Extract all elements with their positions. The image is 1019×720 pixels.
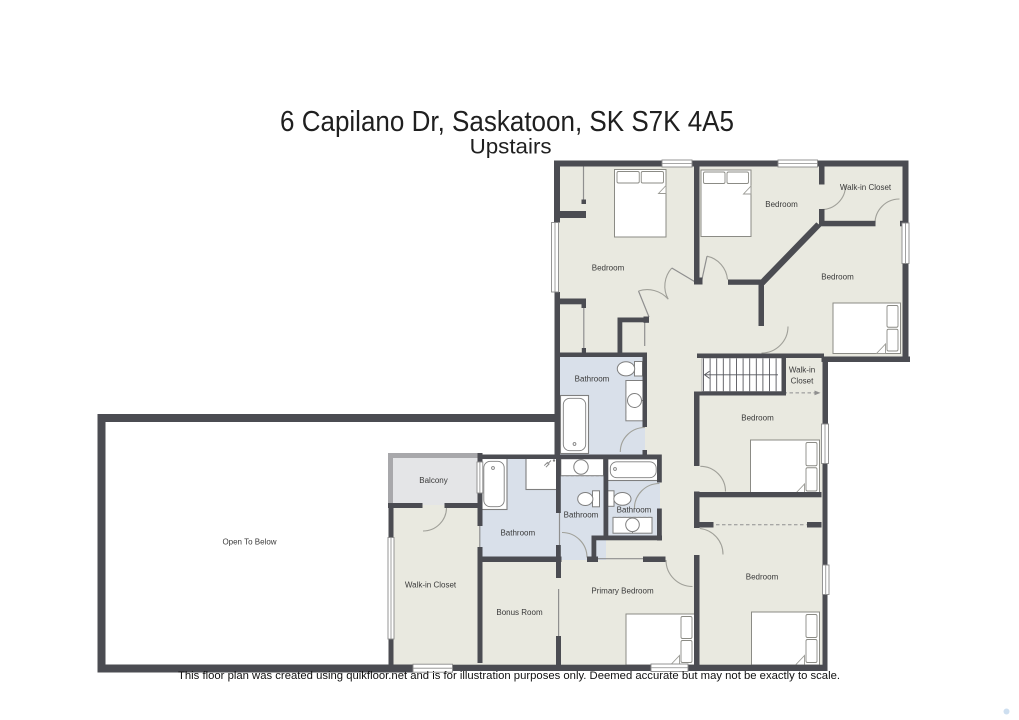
svg-text:6 Capilano Dr, Saskatoon, SK S: 6 Capilano Dr, Saskatoon, SK S7K 4A5 <box>280 106 734 138</box>
svg-text:Balcony: Balcony <box>419 476 447 485</box>
svg-text:Walk-in Closet: Walk-in Closet <box>405 581 457 590</box>
svg-text:Walk-in: Walk-in <box>789 366 815 375</box>
svg-text:Bathroom: Bathroom <box>564 511 599 520</box>
svg-text:Bedroom: Bedroom <box>592 264 625 273</box>
svg-text:Open To Below: Open To Below <box>222 537 276 546</box>
svg-text:Upstairs: Upstairs <box>470 136 552 159</box>
svg-text:Bedroom: Bedroom <box>765 200 798 209</box>
svg-text:Bedroom: Bedroom <box>821 273 854 282</box>
svg-text:Walk-in Closet: Walk-in Closet <box>840 183 892 192</box>
svg-text:Bathroom: Bathroom <box>500 529 535 538</box>
svg-text:Bathroom: Bathroom <box>575 375 610 384</box>
svg-text:Primary Bedroom: Primary Bedroom <box>591 587 654 596</box>
svg-text:Bathroom: Bathroom <box>617 506 652 515</box>
svg-text:This floor plan was created us: This floor plan was created using quikfl… <box>178 670 840 682</box>
svg-text:Bedroom: Bedroom <box>741 414 774 423</box>
svg-text:Closet: Closet <box>791 377 814 386</box>
svg-text:Bonus Room: Bonus Room <box>496 608 543 617</box>
svg-text:Bedroom: Bedroom <box>746 573 779 582</box>
